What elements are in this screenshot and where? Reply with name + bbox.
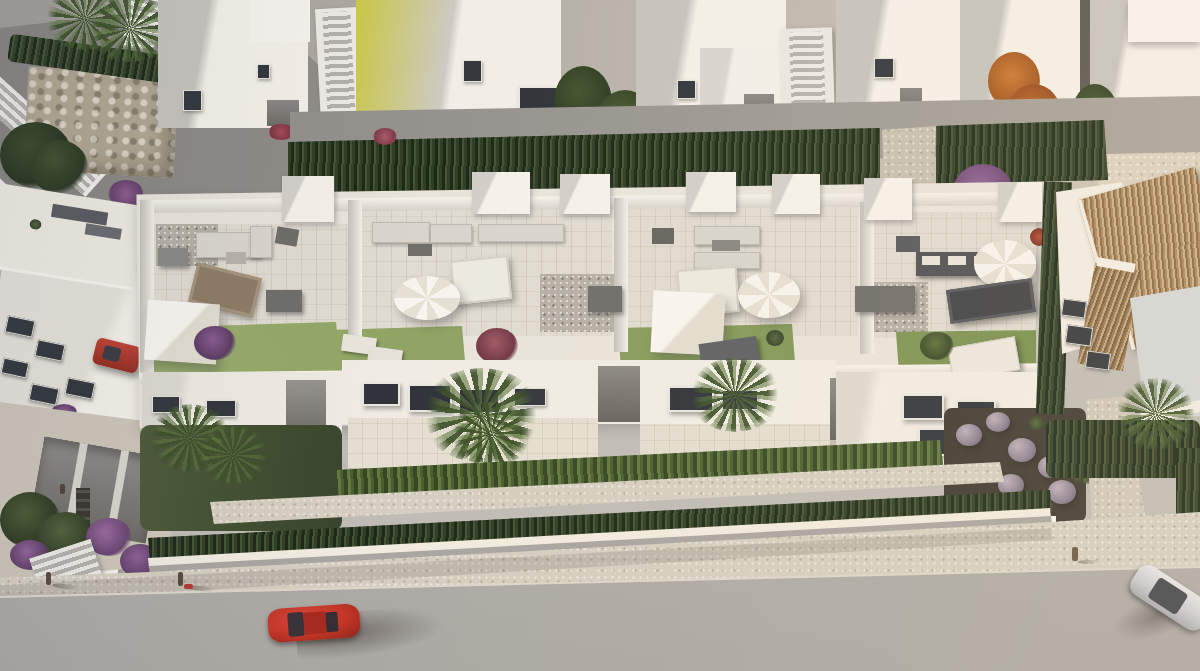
window	[257, 64, 270, 79]
round-parasol	[738, 272, 800, 318]
red-car	[266, 595, 365, 654]
pedestrian-cart	[184, 584, 193, 589]
car-rear-window	[325, 611, 338, 632]
pedestrian	[1072, 547, 1078, 561]
window	[362, 382, 400, 406]
stair-bulkhead	[772, 174, 820, 214]
stairwell-recess	[598, 366, 640, 422]
outdoor-sofa	[372, 222, 430, 243]
ac-unit	[266, 290, 302, 312]
lounge-chair	[275, 226, 300, 247]
outdoor-sofa	[430, 224, 472, 243]
lounge-chair	[896, 236, 920, 252]
palm-tree	[688, 358, 782, 432]
stair-bulkhead	[560, 174, 610, 214]
palm-tree	[196, 426, 270, 484]
stair-bulkhead	[998, 182, 1042, 222]
terrace-shrub	[920, 332, 954, 360]
window	[677, 80, 696, 99]
car-windshield	[287, 612, 305, 637]
stair-bulkhead	[686, 172, 736, 212]
terrace-divider	[860, 202, 874, 354]
roof-plant	[29, 219, 42, 231]
palm-tree-large	[448, 402, 534, 466]
ac-unit	[158, 248, 188, 266]
roof-sofa	[85, 223, 122, 239]
stair-bulkhead	[472, 172, 530, 214]
coffee-table	[408, 244, 432, 256]
stair-bulkhead	[282, 176, 334, 222]
sofa-cushion	[922, 256, 940, 265]
sofa-cushion	[948, 256, 966, 265]
pedestrian	[46, 572, 51, 585]
car-windshield	[102, 345, 122, 363]
window	[183, 90, 202, 111]
window	[463, 60, 482, 82]
terrace-divider	[614, 198, 628, 352]
roof-cap	[1128, 0, 1200, 42]
pedestrian-shadow	[1078, 560, 1100, 564]
soil-tuft	[1028, 416, 1044, 430]
window	[874, 58, 894, 78]
ac-unit	[588, 286, 622, 312]
palm-tree	[1116, 378, 1196, 450]
pink-terrace-shrub	[476, 328, 518, 364]
ac-unit	[855, 286, 915, 312]
terrace-divider	[348, 200, 362, 352]
rear-townhouse-roof	[250, 0, 310, 42]
villa-window	[1065, 324, 1093, 346]
lounge-chair	[652, 228, 674, 244]
aerial-render	[0, 0, 1200, 671]
villa-window	[1061, 298, 1087, 318]
gravel-ball-shrub	[956, 424, 982, 446]
gravel-ball-shrub	[1048, 480, 1076, 504]
round-parasol	[394, 276, 460, 320]
outdoor-sofa	[250, 226, 272, 258]
outdoor-counter	[478, 224, 564, 242]
pedestrian-garden	[60, 484, 65, 494]
pink-shrub	[373, 128, 397, 145]
gravel-ball-shrub	[1008, 438, 1036, 462]
stair-steps	[322, 11, 356, 118]
window	[902, 394, 944, 420]
dark-tree	[30, 140, 88, 194]
terrace-plant	[766, 330, 784, 346]
car-roof	[303, 611, 326, 634]
coffee-table	[712, 240, 740, 251]
villa-window	[1085, 350, 1111, 370]
stair-bulkhead	[864, 178, 912, 220]
coffee-table	[226, 252, 246, 264]
roof-sofa	[51, 204, 108, 226]
gravel-ball-shrub	[986, 412, 1010, 432]
pedestrian	[178, 572, 183, 586]
purple-terrace-shrub	[194, 326, 236, 360]
